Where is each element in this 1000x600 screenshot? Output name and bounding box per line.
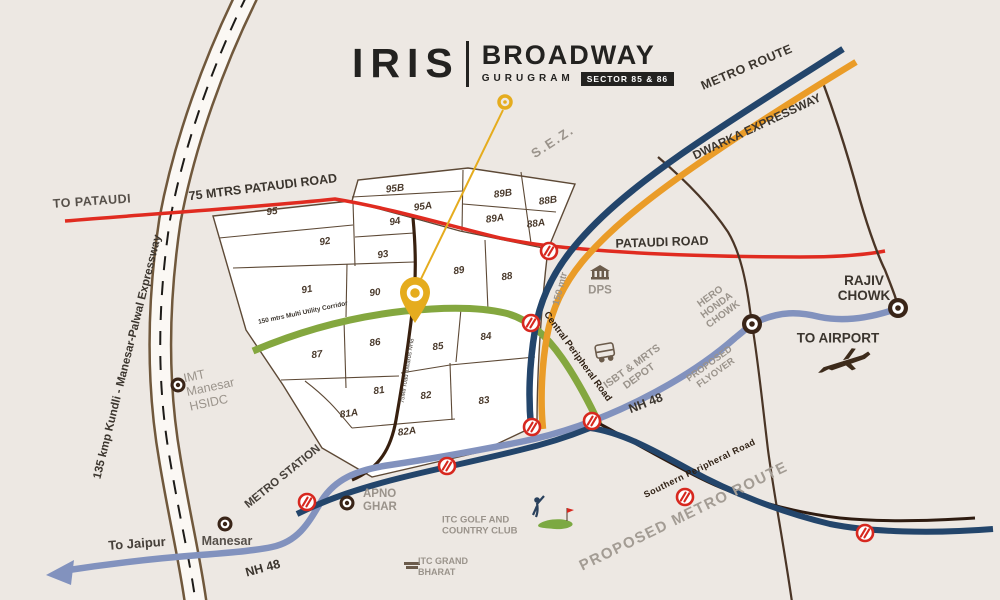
brand-sector-badge: SECTOR 85 & 86 (581, 72, 674, 86)
sector-label-86: 86 (369, 337, 382, 349)
metro-station-icon (541, 243, 557, 259)
label-rajiv-chowk: RAJIV CHOWK (828, 274, 900, 304)
sector-label-91: 91 (301, 284, 314, 297)
metro-station-icon (584, 413, 600, 429)
metro-station-icon (439, 458, 455, 474)
sector-label-95b: 95B (385, 183, 404, 196)
sector-label-84: 84 (480, 331, 493, 343)
brand-title: BROADWAY (482, 42, 674, 69)
hero-honda-chowk-node (742, 314, 762, 334)
metro-station-icon (857, 525, 873, 541)
brand-name: IRIS (352, 40, 460, 87)
sector-label-95: 95 (266, 206, 279, 218)
to-jaipur-arrowhead (46, 560, 74, 585)
sector-label-89: 89 (453, 265, 466, 278)
label-itc-grand-bharat: ITC GRAND BHARAT (418, 556, 480, 578)
label-to-airport: TO AIRPORT (797, 332, 880, 347)
label-itc-golf: ITC GOLF AND COUNTRY CLUB (442, 515, 538, 538)
brand-logo: IRIS BROADWAY GURUGRAM SECTOR 85 & 86 (352, 40, 674, 87)
golfer-icon (533, 496, 574, 529)
label-apno-ghar: APNO GHAR (363, 488, 413, 514)
brand-divider (466, 41, 469, 87)
sector-label-90: 90 (369, 287, 382, 299)
apno-ghar-marker (340, 496, 355, 511)
kmp-expressway-road (160, 0, 247, 600)
sector-label-87: 87 (311, 349, 324, 361)
label-dps: DPS (588, 285, 612, 298)
sector-label-82: 82 (420, 390, 433, 402)
metro-station-icon (523, 315, 539, 331)
brand-city: GURUGRAM (482, 73, 574, 84)
sector-label-92: 92 (319, 236, 332, 249)
sector-label-94: 94 (389, 216, 402, 229)
sector-label-83: 83 (478, 395, 491, 407)
manesar-marker (218, 517, 233, 532)
sector-label-93: 93 (377, 249, 390, 262)
sector-label-85: 85 (432, 341, 445, 353)
pin-connector-dot-core (503, 100, 507, 104)
school-icon (590, 265, 610, 280)
metro-station-icon (524, 419, 540, 435)
location-map: TO PATAUDI 75 MTRS PATAUDI ROAD PATAUDI … (0, 0, 1000, 600)
sector-label-81: 81 (373, 385, 386, 397)
label-manesar: Manesar (202, 535, 253, 549)
airplane-icon (816, 346, 872, 374)
sector-label-88: 88 (501, 271, 514, 284)
sector-area-fill (213, 201, 548, 477)
metro-station-icon (299, 494, 315, 510)
bus-icon (595, 343, 616, 363)
